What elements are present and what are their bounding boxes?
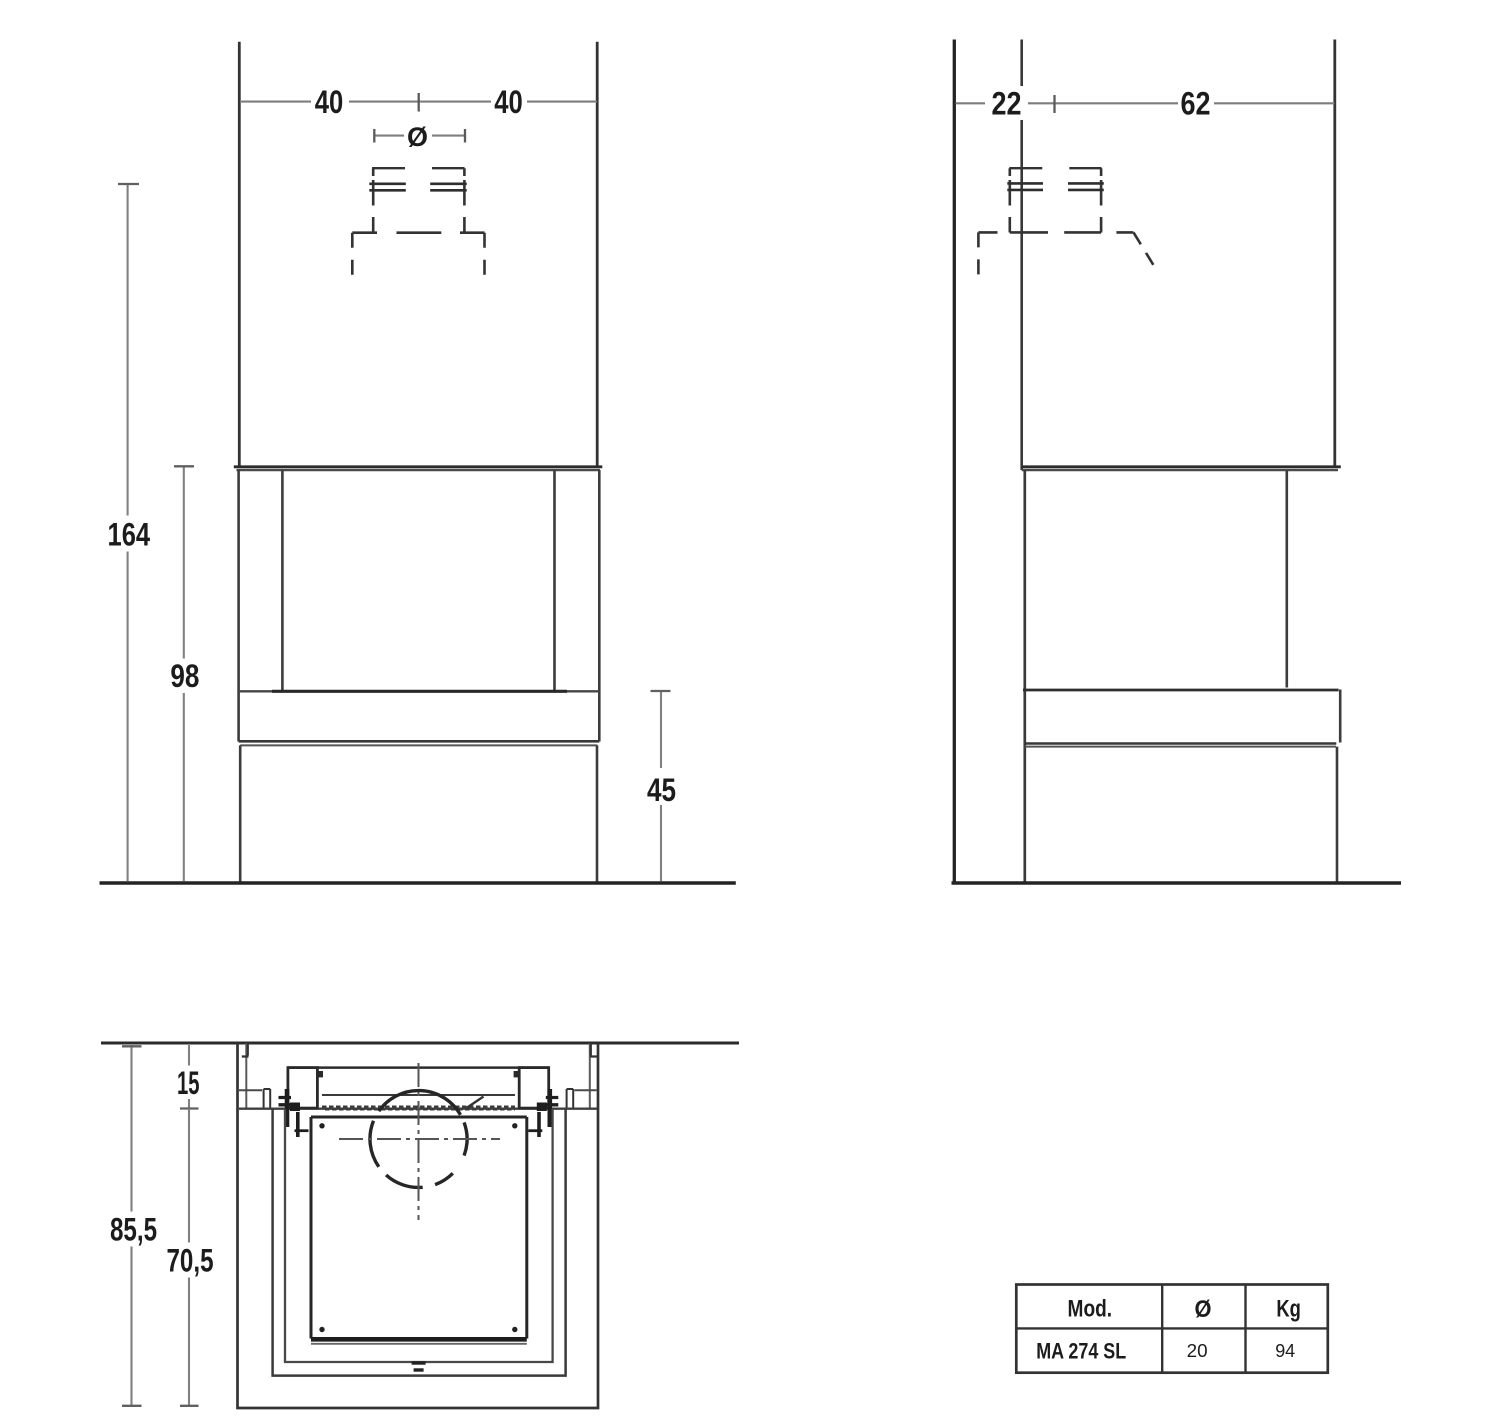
svg-text:Kg: Kg xyxy=(1276,1295,1301,1322)
svg-text:164: 164 xyxy=(108,516,151,552)
svg-text:98: 98 xyxy=(170,658,199,694)
svg-text:62: 62 xyxy=(1181,86,1211,122)
svg-text:40: 40 xyxy=(315,84,344,120)
svg-text:20: 20 xyxy=(1187,1341,1208,1361)
svg-text:15: 15 xyxy=(177,1065,200,1101)
svg-text:Mod.: Mod. xyxy=(1068,1295,1113,1322)
svg-text:22: 22 xyxy=(992,86,1022,122)
svg-text:85,5: 85,5 xyxy=(110,1211,157,1247)
svg-text:70,5: 70,5 xyxy=(167,1243,214,1279)
svg-text:MA 274 SL: MA 274 SL xyxy=(1036,1339,1126,1364)
svg-text:45: 45 xyxy=(647,772,676,808)
svg-text:40: 40 xyxy=(494,84,523,120)
svg-text:Ø: Ø xyxy=(1195,1296,1212,1323)
svg-text:Ø: Ø xyxy=(407,122,428,152)
svg-text:94: 94 xyxy=(1275,1341,1295,1361)
